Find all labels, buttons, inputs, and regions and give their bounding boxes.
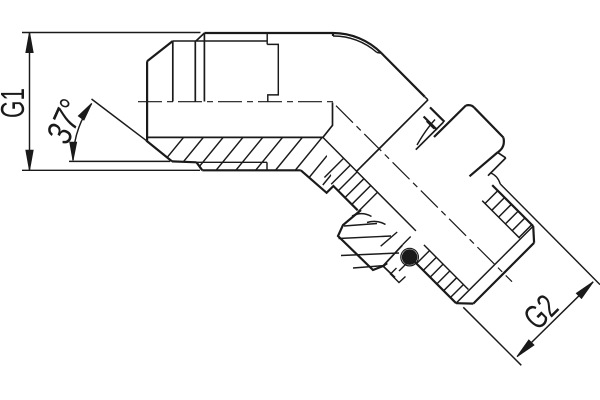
svg-text:G1: G1	[0, 88, 31, 118]
svg-text:37°: 37°	[38, 94, 92, 149]
svg-text:G2: G2	[516, 288, 565, 337]
